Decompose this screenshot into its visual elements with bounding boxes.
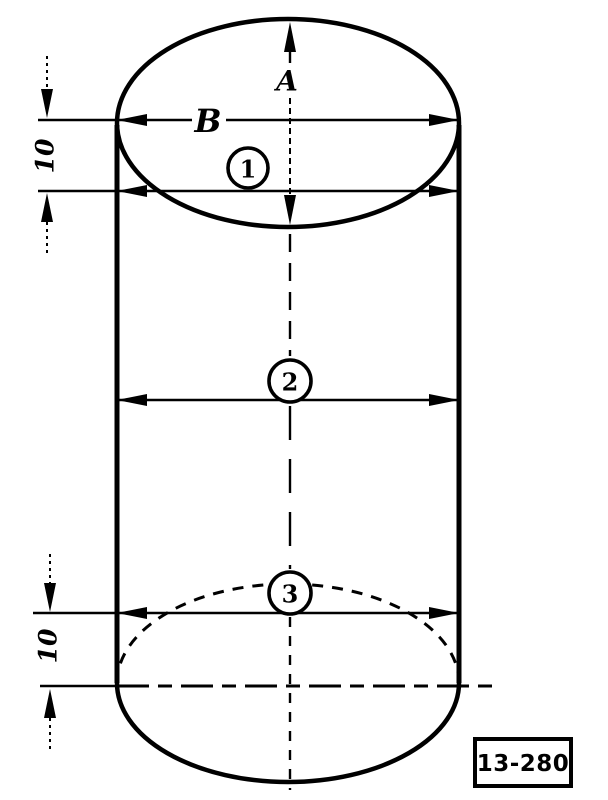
level-line-bottom-arrow-left: [117, 607, 147, 619]
callout-1-number: 1: [240, 155, 257, 184]
dim-a-arrow-down: [284, 195, 296, 225]
dim-b-arrow-right: [429, 114, 459, 126]
cylinder-bottom-ellipse-solid: [117, 683, 459, 782]
dim-a-label: A: [273, 65, 298, 98]
dim-a-arrow-up: [284, 22, 296, 52]
top-offset-arrow-down: [41, 89, 53, 118]
figure-number-text: 13-280: [477, 751, 570, 777]
level-line-bottom-arrow-right: [429, 607, 459, 619]
top-offset-label: 10: [31, 138, 60, 173]
bottom-offset-arrow-up: [44, 689, 56, 718]
level-line-top-arrow-left: [117, 185, 147, 197]
callout-3-number: 3: [282, 580, 299, 609]
top-offset-arrow-up: [41, 193, 53, 222]
bottom-offset-arrow-down: [44, 583, 56, 612]
dim-2-arrow-left: [117, 394, 147, 406]
dim-b-label: B: [193, 102, 221, 140]
level-line-top-arrow-right: [429, 185, 459, 197]
dim-2-arrow-right: [429, 394, 459, 406]
callout-2-number: 2: [282, 368, 299, 397]
cylinder-measurement-diagram: 10 10 A B 1 2 3 13-280: [0, 0, 608, 800]
bottom-offset-label: 10: [34, 628, 63, 663]
manual-figure-page: 10 10 A B 1 2 3 13-280: [0, 0, 608, 800]
dim-b-arrow-left: [117, 114, 147, 126]
